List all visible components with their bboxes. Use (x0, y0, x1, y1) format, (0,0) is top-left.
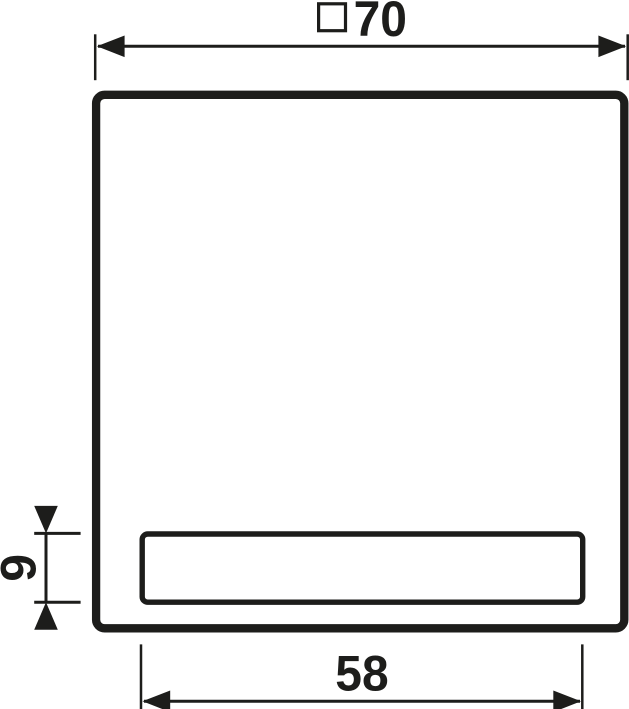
svg-text:9: 9 (0, 554, 47, 582)
svg-text:58: 58 (335, 647, 388, 702)
svg-text:70: 70 (354, 0, 407, 47)
